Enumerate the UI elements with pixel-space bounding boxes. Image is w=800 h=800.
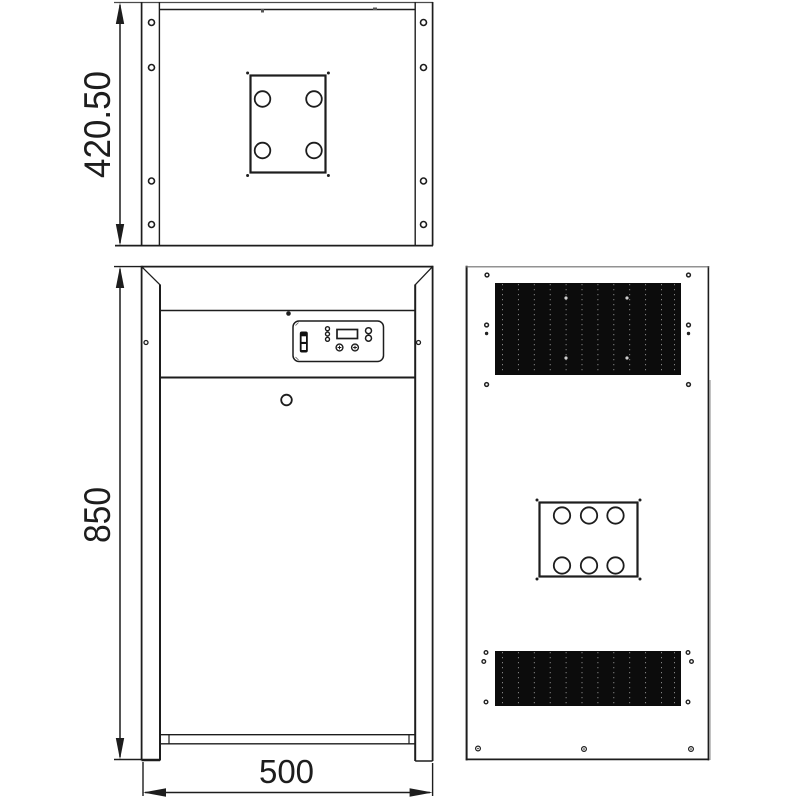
svg-text:420.50: 420.50 [77, 71, 118, 178]
svg-text:850: 850 [77, 487, 118, 543]
svg-text:500: 500 [259, 753, 314, 790]
